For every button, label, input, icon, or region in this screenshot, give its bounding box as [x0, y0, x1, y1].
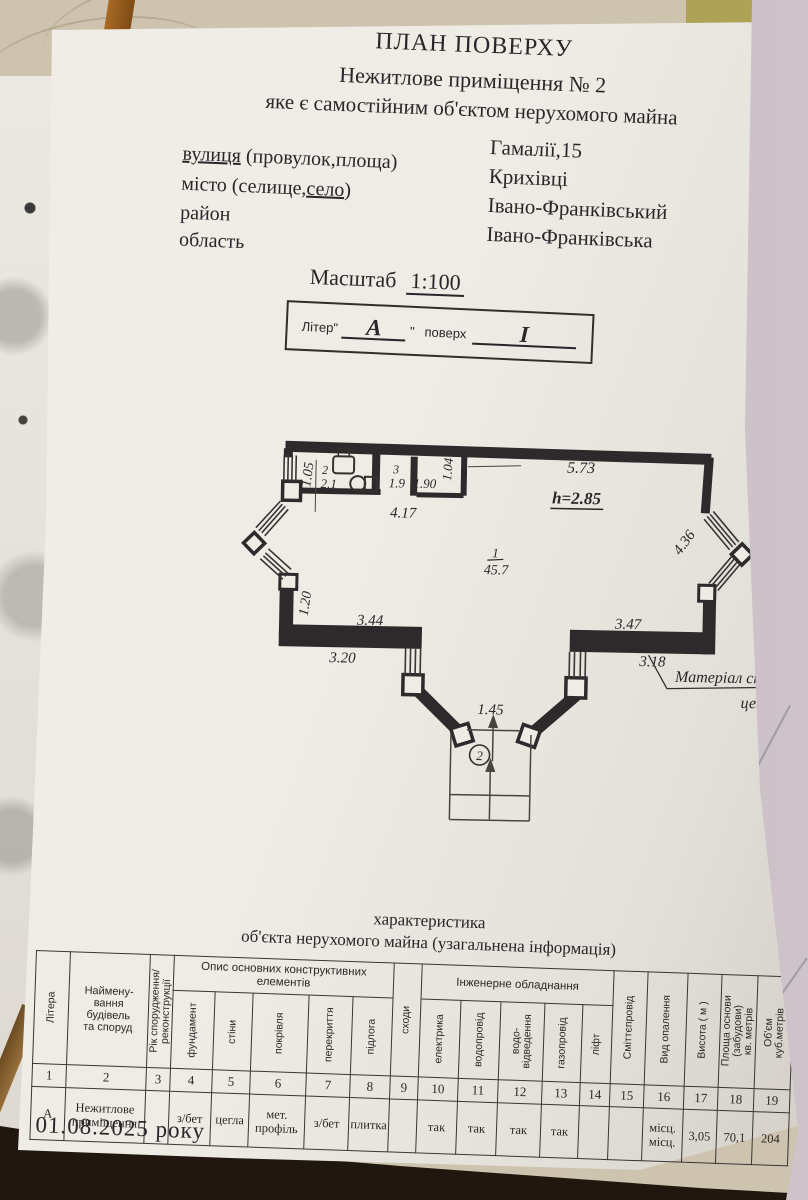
col-number-15: 15	[609, 1084, 644, 1108]
document-header: ПЛАН ПОВЕРХУ Нежитлове приміщення № 2 як…	[66, 16, 759, 134]
col-value-6: мет. профіль	[248, 1094, 306, 1149]
col-header-17: Висота ( м )	[684, 973, 722, 1087]
liter-box: Літер " А " поверх I	[285, 300, 595, 364]
col-value-12: так	[496, 1103, 542, 1158]
svg-text:1.04: 1.04	[439, 457, 456, 481]
col-number-2: 2	[66, 1065, 147, 1091]
plan-walls	[277, 446, 718, 739]
floor-label: поверх	[424, 324, 466, 341]
col-value-7: з/бет	[304, 1096, 350, 1151]
col-value-16: місц. місц.	[642, 1108, 684, 1162]
col-header-1: Літера	[33, 951, 71, 1065]
liter-label: Літер	[301, 318, 333, 334]
svg-text:3: 3	[392, 462, 399, 476]
col-number-7: 7	[306, 1073, 351, 1098]
col-number-19: 19	[753, 1089, 790, 1113]
col-number-16: 16	[643, 1085, 684, 1109]
col-value-11: так	[456, 1101, 498, 1155]
col-header-14: ліфт	[580, 1005, 613, 1084]
svg-text:2: 2	[476, 748, 483, 763]
col-value-17: 3,05	[682, 1109, 718, 1163]
col-value-8: плитка	[348, 1098, 390, 1152]
col-number-4: 4	[170, 1068, 213, 1092]
svg-text:h=2.85: h=2.85	[552, 488, 602, 508]
quote: "	[333, 320, 338, 335]
svg-text:1.90: 1.90	[413, 476, 437, 491]
svg-text:1.45: 1.45	[477, 702, 504, 719]
quote: "	[410, 323, 415, 338]
col-value-14	[578, 1106, 610, 1160]
photo-of-floor-plan-document: ПЛАН ПОВЕРХУ Нежитлове приміщення № 2 як…	[0, 0, 808, 1200]
svg-text:1.20: 1.20	[297, 590, 316, 617]
col-header-8: підлога	[350, 997, 393, 1076]
col-value-13: так	[540, 1104, 580, 1158]
col-number-10: 10	[418, 1077, 459, 1101]
svg-text:4.36: 4.36	[670, 527, 699, 558]
col-value-19: 204	[751, 1112, 789, 1166]
svg-text:5.73: 5.73	[567, 460, 595, 478]
col-number-12: 12	[497, 1080, 542, 1105]
col-header-11: водопровід	[458, 1001, 501, 1080]
col-number-18: 18	[717, 1087, 754, 1111]
table-title: характеристика об'єкта нерухомого майна …	[148, 900, 709, 964]
col-header-5: стіни	[212, 992, 253, 1071]
svg-text:2.1: 2.1	[320, 476, 337, 491]
col-header-18: Площа основи (забудови) кв. метрів	[718, 974, 758, 1088]
col-header-13: газопровід	[542, 1004, 583, 1083]
svg-text:2: 2	[322, 463, 328, 477]
col-header-6: покрівля	[250, 993, 309, 1073]
col-number-8: 8	[350, 1075, 391, 1099]
col-number-6: 6	[250, 1071, 307, 1096]
region-value: Івано-Франківська	[486, 220, 667, 256]
col-header-15: Сміттєпровід	[610, 971, 648, 1085]
scale-line: Масштаб1:100	[309, 264, 465, 296]
svg-text:Матеріал ст: Матеріал ст	[674, 669, 765, 688]
scale-label: Масштаб	[309, 264, 397, 292]
floor-plan-drawing: 2 1.05 2 2.1 3 1.9 1.90 1.04 4.17 5.73 h…	[214, 418, 802, 859]
entrance-number-mark: 2	[469, 745, 489, 765]
svg-text:1.9: 1.9	[389, 475, 406, 490]
col-value-5: цегла	[210, 1093, 250, 1147]
col-header-16: Вид опалення	[644, 972, 688, 1086]
col-header-12: водо- відведення	[498, 1002, 545, 1081]
svg-text:3.47: 3.47	[614, 617, 643, 634]
col-number-13: 13	[541, 1081, 580, 1105]
col-header-9: сходи	[390, 963, 422, 1077]
svg-text:3.44: 3.44	[356, 613, 384, 630]
col-value-15	[608, 1107, 644, 1161]
col-value-18: 70,1	[715, 1110, 753, 1164]
col-value-10: так	[416, 1100, 458, 1154]
col-number-1: 1	[32, 1063, 67, 1087]
col-header-2: Наймену- вання будівель та споруд	[67, 952, 151, 1068]
scale-value: 1:100	[406, 268, 465, 297]
col-number-5: 5	[212, 1070, 251, 1094]
svg-text:45.7: 45.7	[484, 563, 510, 578]
address-labels: вулиця (провулок,площа) місто (селище,се…	[179, 139, 398, 262]
liter-value: А	[342, 317, 407, 342]
floor-value: I	[472, 323, 577, 350]
col-header-3: Рік спорудження/ реконструкції	[146, 954, 174, 1068]
svg-text:4.17: 4.17	[390, 505, 418, 522]
col-number-14: 14	[579, 1083, 610, 1107]
col-header-10: електрика	[418, 999, 461, 1078]
address-values: Гамалії,15 Крихівці Івано-Франківський І…	[486, 133, 670, 256]
col-number-11: 11	[457, 1078, 498, 1102]
col-number-3: 3	[146, 1067, 171, 1091]
col-header-7: перекриття	[306, 995, 353, 1074]
svg-text:1.05: 1.05	[299, 461, 317, 487]
col-number-9: 9	[390, 1076, 419, 1100]
svg-text:3.20: 3.20	[328, 650, 356, 667]
col-header-4: фундамент	[170, 991, 215, 1070]
col-value-9	[388, 1099, 418, 1153]
svg-text:1: 1	[492, 545, 499, 560]
col-number-17: 17	[683, 1086, 718, 1110]
